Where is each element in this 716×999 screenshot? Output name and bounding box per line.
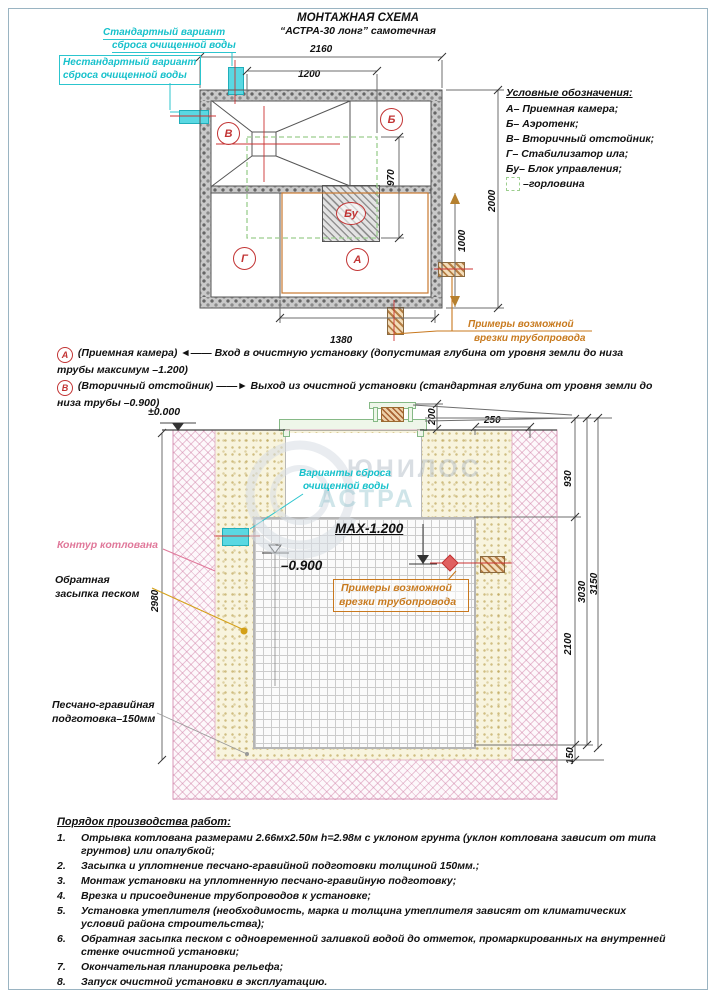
- standard-outlet-label-line2: сброса очищенной воды: [112, 40, 236, 53]
- section-pipe-note-box: Примеры возможной врезки трубопровода: [333, 579, 469, 612]
- dim-total-depth: 3150: [589, 573, 600, 595]
- worklist-num-1: 1.: [57, 832, 81, 858]
- discharge-label-line1: Варианты сброса: [299, 468, 391, 479]
- note-a-arrow-icon: ◄——: [180, 347, 211, 359]
- worklist-text-8: Запуск очистной установки в эксплуатацию…: [81, 976, 669, 989]
- dim-bed-thickness: 150: [565, 747, 576, 764]
- worklist-item-7: 7.Окончательная планировка рельефа;: [57, 961, 669, 974]
- worklist-num-7: 7.: [57, 961, 81, 974]
- drawing-title: МОНТАЖНАЯ СХЕМА: [268, 12, 448, 24]
- backfill-label-line2: засыпка песком: [55, 588, 139, 600]
- inlet-pipe-stub-bottom: [387, 307, 404, 335]
- plan-wall-left: [200, 101, 211, 297]
- dim-cover-height: 200: [427, 408, 438, 425]
- compartment-label-g: Г: [233, 247, 256, 270]
- section-inlet-pipe-stub: [480, 556, 505, 573]
- dim-neck-depth: 930: [563, 470, 574, 487]
- compartment-letter-bu: Бу: [344, 208, 358, 220]
- plan-wall-division: [211, 186, 431, 193]
- compartment-label-b: Б: [380, 108, 403, 131]
- note-b: В (Вторичный отстойник) ——► Выход из очи…: [57, 379, 659, 410]
- nonstandard-outlet-pipe-stub: [179, 110, 209, 124]
- plan-pipe-note-line2: врезки трубопровода: [474, 333, 585, 344]
- section-pipe-note-line2: врезки трубопровода: [339, 596, 456, 608]
- dim-neck-height: 970: [386, 169, 397, 186]
- dim-body-height: 2100: [563, 633, 574, 655]
- legend-item-v: В– Вторичный отстойник;: [506, 133, 654, 145]
- bed-label-line1: Песчано-гравийная: [52, 699, 155, 711]
- compartment-letter-a: А: [354, 254, 362, 266]
- worklist: 1.Отрывка котлована размерами 2.66мх2.50…: [57, 832, 669, 991]
- standard-outlet-label-line1: Стандартный вариант: [103, 27, 225, 40]
- worklist-num-2: 2.: [57, 860, 81, 873]
- max-depth-label: МАХ-1.200: [335, 521, 403, 536]
- dim-edge-offset: 250: [484, 415, 501, 426]
- bed-label-line2: подготовка–150мм: [52, 713, 155, 725]
- legend-item-b: Б– Аэротенк;: [506, 118, 579, 130]
- dim-pit-depth: 2980: [150, 590, 161, 612]
- worklist-num-5: 5.: [57, 905, 81, 931]
- drawing-subtitle: “АСТРА-30 лонг” самотечная: [248, 25, 468, 37]
- section-tank-body: [253, 517, 476, 749]
- note-a-marker: А: [57, 347, 73, 363]
- worklist-text-2: Засыпка и уплотнение песчано-гравийной п…: [81, 860, 669, 873]
- standard-outlet-pipe-stub: [228, 67, 244, 95]
- tank-cover: [279, 419, 427, 431]
- worklist-num-6: 6.: [57, 933, 81, 959]
- worklist-num-4: 4.: [57, 890, 81, 903]
- legend-item-a: А– Приемная камера;: [506, 103, 618, 115]
- outlet-level-label: –0.900: [281, 558, 322, 573]
- worklist-num-8: 8.: [57, 976, 81, 989]
- worklist-item-2: 2.Засыпка и уплотнение песчано-гравийной…: [57, 860, 669, 873]
- worklist-num-3: 3.: [57, 875, 81, 888]
- plan-wall-bottom: [200, 297, 442, 308]
- cover-leg-left: [283, 429, 290, 437]
- compartment-letter-b: Б: [388, 114, 396, 126]
- legend-title: Условные обозначения:: [506, 87, 633, 99]
- legend-item-bu: Бу– Блок управления;: [506, 163, 622, 175]
- compartment-letter-v: В: [225, 128, 233, 140]
- inlet-outlet-notes: А (Приемная камера) ◄—— Вход в очистную …: [57, 346, 659, 410]
- nonstandard-outlet-label-box: Нестандартный вариант сброса очищенной в…: [59, 55, 201, 85]
- drawing-sheet: МОНТАЖНАЯ СХЕМА “АСТРА-30 лонг” самотечн…: [0, 0, 716, 999]
- compartment-letter-g: Г: [241, 253, 248, 265]
- worklist-text-1: Отрывка котлована размерами 2.66мх2.50м …: [81, 832, 669, 858]
- dim-total-height: 2000: [487, 190, 498, 212]
- worklist-text-3: Монтаж установки на уплотненную песчано-…: [81, 875, 669, 888]
- dim-neck-width: 1200: [298, 69, 320, 80]
- dim-sum-depth: 3030: [577, 581, 588, 603]
- plan-pipe-note-line1: Примеры возможной: [468, 319, 574, 330]
- legend-item-neck: –горловина: [523, 178, 585, 190]
- worklist-item-6: 6.Обратная засыпка песком с одновременно…: [57, 933, 669, 959]
- worklist-text-5: Установка утеплителя (необходимость, мар…: [81, 905, 669, 931]
- section-pipe-note-line1: Примеры возможной: [341, 582, 452, 594]
- compartment-label-bu: Бу: [336, 202, 366, 225]
- section-outlet-pipe-stub: [222, 528, 249, 546]
- worklist-item-3: 3.Монтаж установки на уплотненную песчан…: [57, 875, 669, 888]
- legend-item-g: Г– Стабилизатор ила;: [506, 148, 628, 160]
- worklist-text-7: Окончательная планировка рельефа;: [81, 961, 669, 974]
- nonstandard-outlet-label-line1: Нестандартный вариант: [63, 57, 196, 68]
- compartment-label-v: В: [217, 122, 240, 145]
- worklist-text-4: Врезка и присоединение трубопроводов к у…: [81, 890, 669, 903]
- worklist-text-6: Обратная засыпка песком с одновременной …: [81, 933, 669, 959]
- worklist-item-4: 4.Врезка и присоединение трубопроводов к…: [57, 890, 669, 903]
- note-a-pre: (Приемная камера): [78, 347, 177, 359]
- backfill-label-line1: Обратная: [55, 574, 110, 586]
- inlet-pipe-stub-right: [438, 262, 465, 277]
- nonstandard-outlet-label-line2: сброса очищенной воды: [63, 70, 187, 81]
- note-b-marker: В: [57, 380, 73, 396]
- neck-legend-icon: [506, 177, 520, 191]
- note-a: А (Приемная камера) ◄—— Вход в очистную …: [57, 346, 659, 377]
- worklist-title: Порядок производства работ:: [57, 816, 231, 828]
- dim-side-offset: 1000: [457, 230, 468, 252]
- worklist-item-8: 8.Запуск очистной установки в эксплуатац…: [57, 976, 669, 989]
- note-b-pre: (Вторичный отстойник): [78, 380, 213, 392]
- pit-contour-label: Контур котлована: [57, 539, 158, 551]
- worklist-item-1: 1.Отрывка котлована размерами 2.66мх2.50…: [57, 832, 669, 858]
- dim-bottom-width: 1380: [330, 335, 352, 346]
- worklist-item-5: 5.Установка утеплителя (необходимость, м…: [57, 905, 669, 931]
- discharge-label-line2: очищенной воды: [303, 481, 389, 492]
- cover-leg-right: [417, 429, 424, 437]
- compartment-label-a: А: [346, 248, 369, 271]
- note-b-arrow-icon: ——►: [216, 380, 247, 392]
- dim-total-width: 2160: [310, 44, 332, 55]
